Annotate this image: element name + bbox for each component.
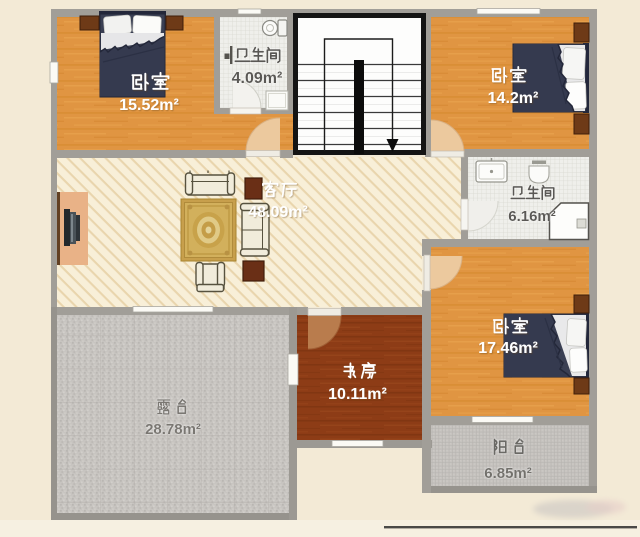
svg-text:14.2m²: 14.2m² — [488, 90, 539, 107]
svg-text:4.09m²: 4.09m² — [232, 70, 283, 87]
svg-text:10.11m²: 10.11m² — [328, 386, 387, 403]
svg-text:6.16m²: 6.16m² — [508, 208, 556, 225]
svg-text:28.78m²: 28.78m² — [145, 421, 201, 438]
svg-text:15.52m²: 15.52m² — [119, 97, 179, 114]
svg-text:48.09m²: 48.09m² — [248, 204, 308, 221]
svg-text:17.46m²: 17.46m² — [478, 340, 538, 357]
svg-text:6.85m²: 6.85m² — [484, 465, 532, 482]
